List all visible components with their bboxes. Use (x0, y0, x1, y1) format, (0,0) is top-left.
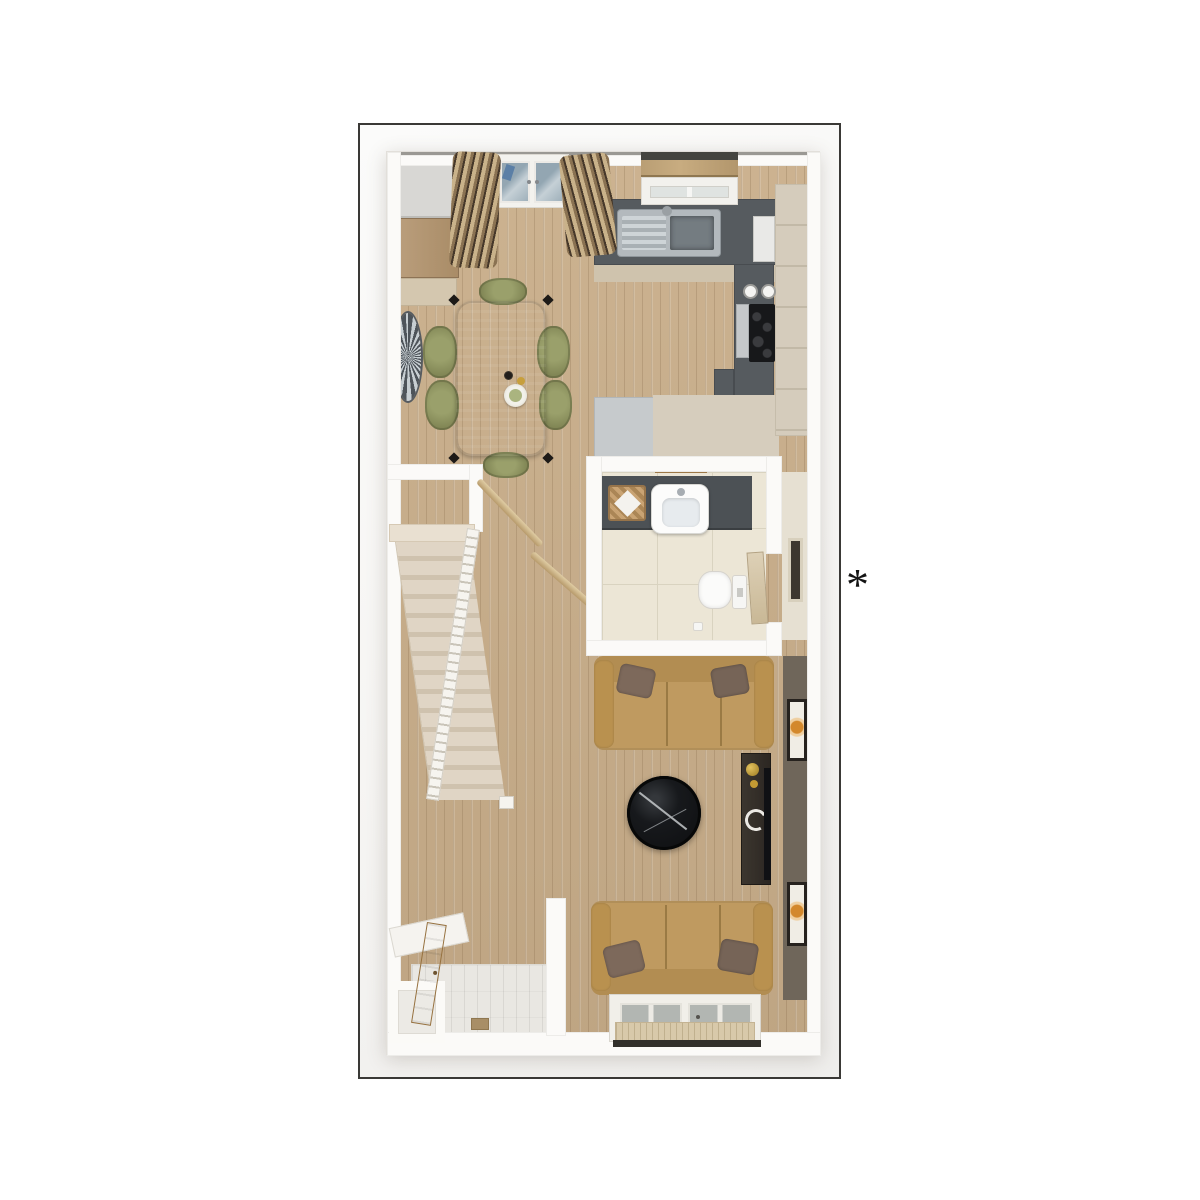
sofa-south (591, 901, 773, 995)
sink-basin (670, 216, 714, 250)
curtain-right (559, 152, 618, 258)
basin-bowl (662, 498, 700, 527)
cup (504, 371, 513, 380)
gold-dish (750, 780, 758, 788)
flush-button (737, 588, 743, 597)
wall-art-frame (787, 882, 807, 946)
bathroom-wall-west (586, 456, 602, 656)
sofa-north (594, 656, 774, 750)
gold-vase (746, 763, 759, 776)
entry-drain-mat (471, 1018, 489, 1030)
wall-east (807, 152, 821, 1056)
kitchen-window-glass (650, 186, 729, 198)
curtain-left (449, 151, 501, 269)
coffee-table (627, 776, 701, 850)
door-handle (535, 180, 539, 184)
kitchen-window (641, 177, 738, 205)
dining-chair (423, 326, 457, 378)
kitchen-window-blind (641, 160, 738, 177)
sink-faucet (662, 206, 672, 216)
kitchen-lower-cabinet-block (653, 395, 779, 459)
wall-art-frame (787, 699, 807, 761)
toilet-cistern (732, 575, 747, 609)
toilet-brush (693, 622, 703, 631)
door-handle (527, 180, 531, 184)
salad-bowl (509, 389, 522, 402)
kettle (743, 284, 758, 299)
bathroom-wall-east-lower (766, 622, 782, 656)
front-door-handle (433, 971, 438, 976)
tv-screen (764, 768, 771, 880)
floorplan-render (386, 151, 820, 1055)
kitchen-window-head (641, 152, 738, 160)
basin-tap (677, 488, 685, 496)
serving-plate (504, 384, 527, 407)
tv-console (741, 753, 771, 885)
window-threshold (613, 1040, 761, 1047)
toilet-bowl (698, 571, 732, 609)
kitchen-sink (617, 209, 721, 257)
bathroom-wall-south (586, 640, 782, 656)
wall-stair-stub (469, 464, 483, 532)
hob-side-panel (736, 304, 749, 358)
footnote-asterisk: * (846, 562, 869, 608)
fridge-block (594, 397, 654, 457)
folded-towel (614, 490, 641, 517)
throw-pillow (615, 663, 656, 700)
dining-table (456, 301, 546, 456)
leaning-art-frame (788, 538, 803, 602)
hob (749, 304, 775, 362)
window-handle (696, 1015, 700, 1019)
sideboard (393, 278, 457, 306)
tall-unit-top (391, 166, 459, 218)
kitchen-appliance (753, 216, 775, 262)
throw-pillow (717, 938, 760, 976)
french-doors (495, 154, 569, 208)
bathroom-wall-east-upper (766, 456, 782, 554)
wall-entry-partition (546, 898, 566, 1036)
cushion-seam (666, 682, 668, 746)
kitchen-wall-cabinets (775, 184, 809, 436)
throw-pillow (710, 663, 751, 699)
stair-landing-step (389, 524, 475, 542)
wall-west (387, 152, 401, 1056)
sofa-armrest (754, 660, 774, 748)
floorplan-frame (358, 123, 841, 1079)
sofa-armrest (594, 660, 614, 748)
dining-chair (425, 380, 459, 430)
sink-drainer (622, 216, 666, 250)
cushion-seam (665, 905, 667, 969)
canister (761, 284, 776, 299)
bathroom-wall-north (586, 456, 782, 472)
basin (651, 484, 709, 534)
stair-newel-post (499, 796, 514, 809)
wicker-basket (608, 485, 646, 521)
